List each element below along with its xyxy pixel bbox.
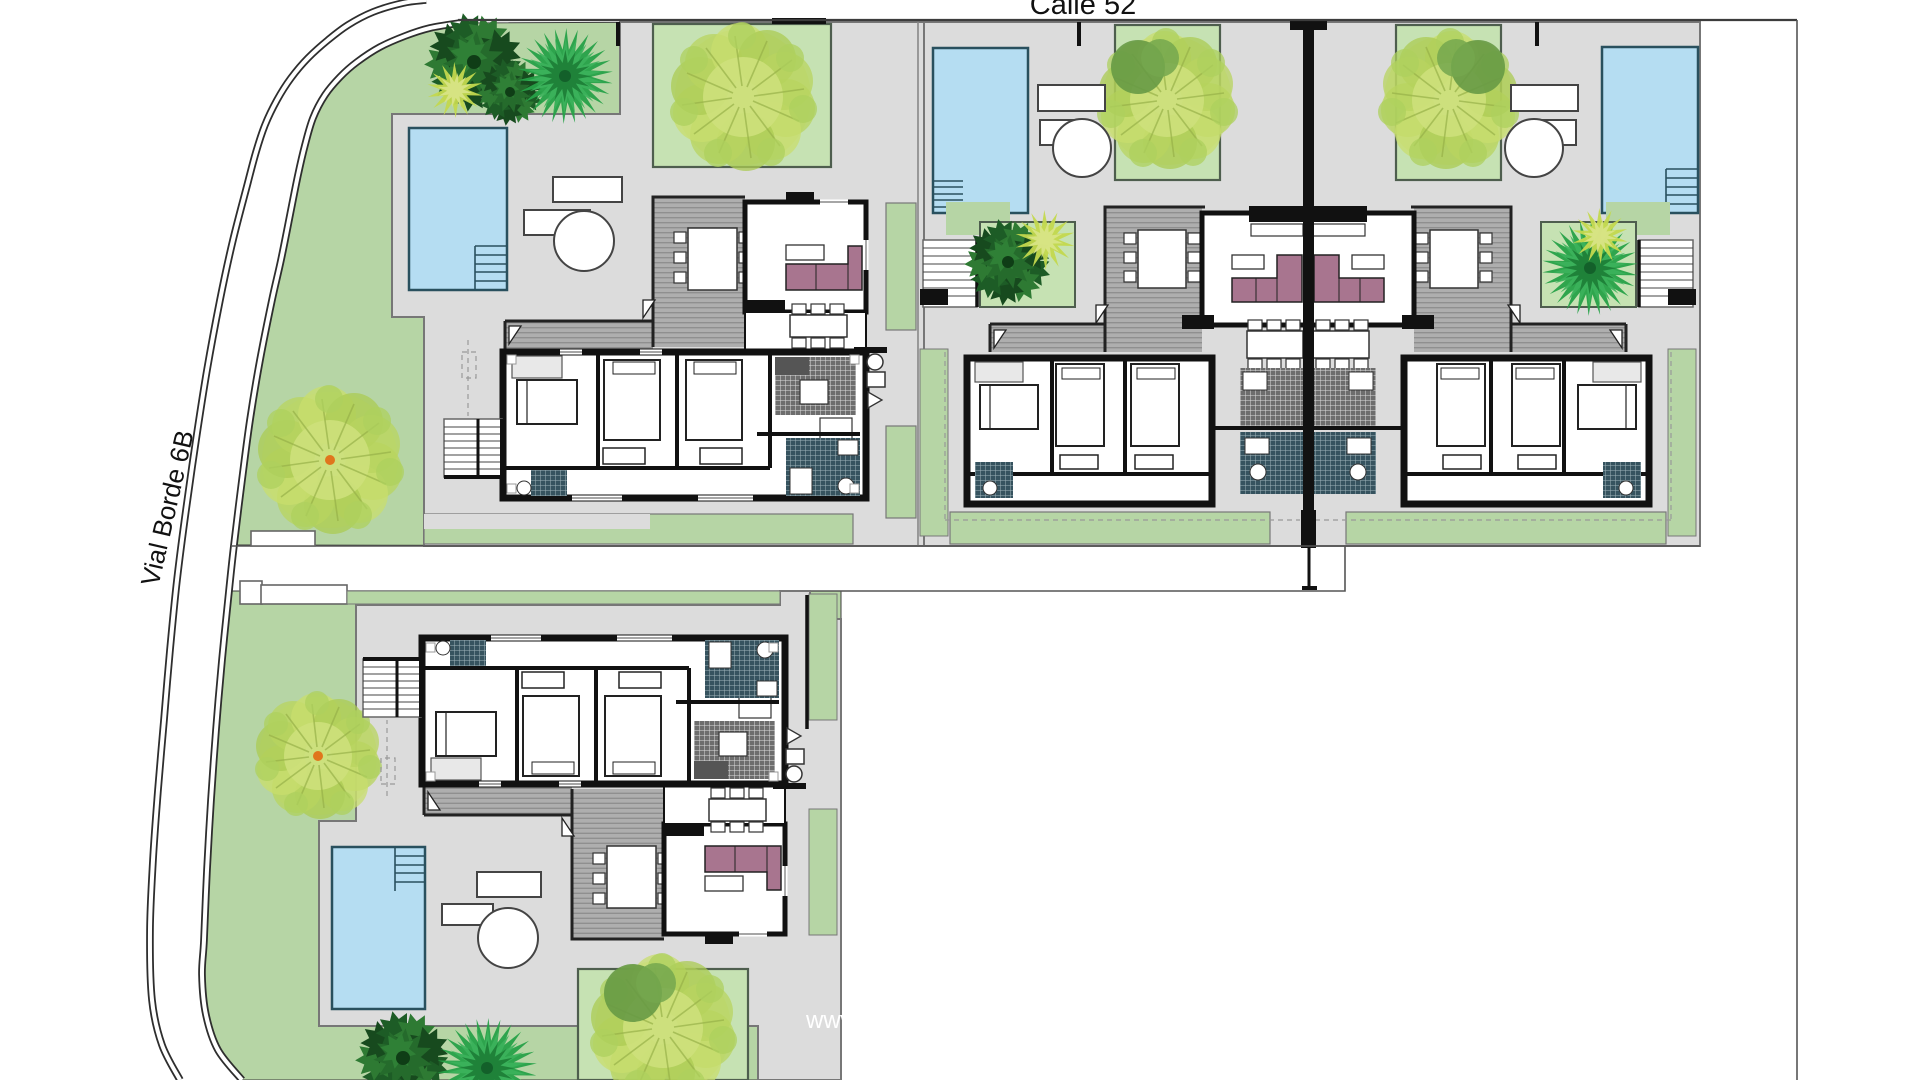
- svg-text:www.medvilla.com: www.medvilla.com: [805, 1007, 1003, 1034]
- svg-text:Calle 52: Calle 52: [1030, 0, 1136, 21]
